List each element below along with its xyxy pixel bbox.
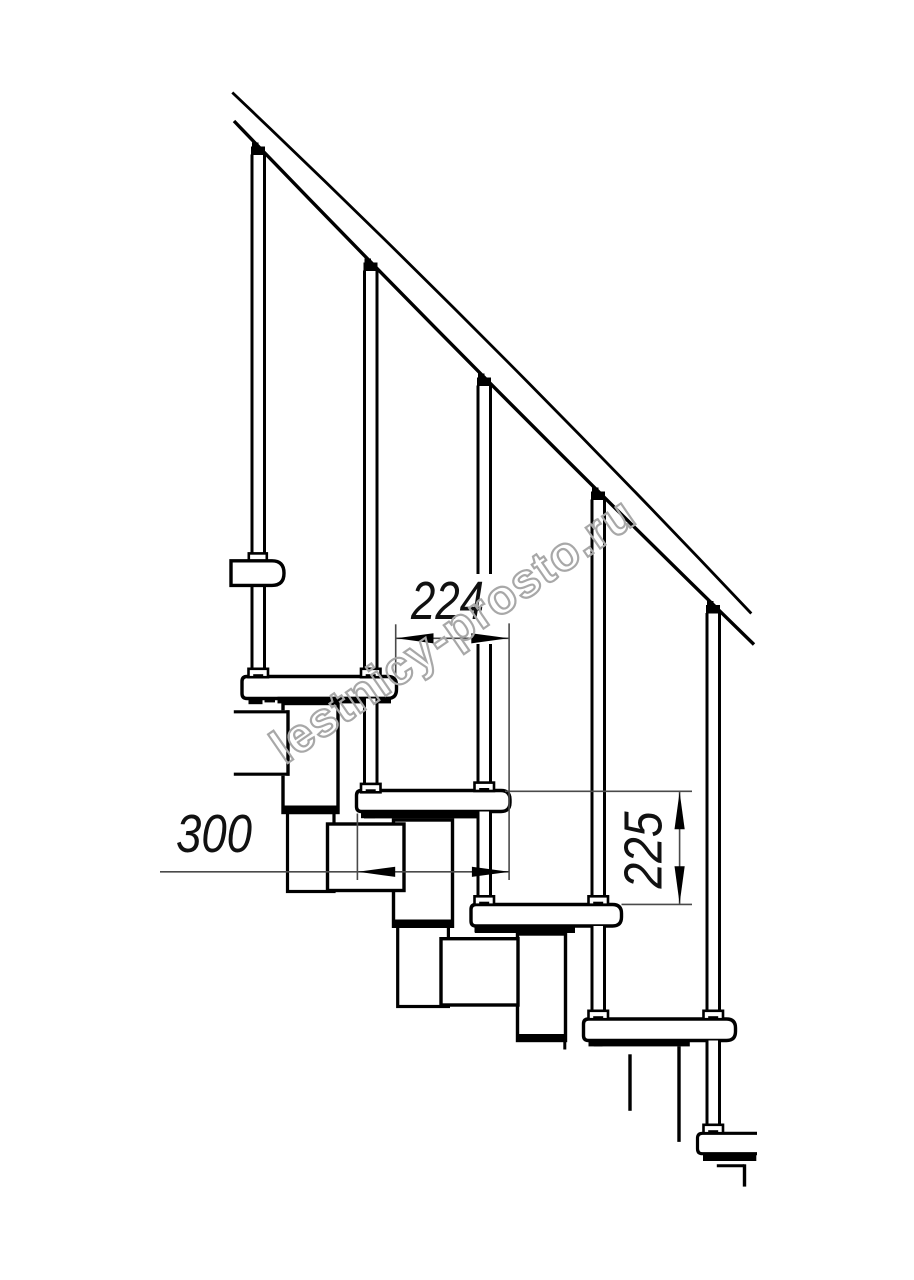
svg-text:lestnicy-prosto.ru: lestnicy-prosto.ru [261, 487, 645, 774]
svg-text:300: 300 [176, 804, 252, 864]
svg-text:225: 225 [614, 811, 674, 890]
